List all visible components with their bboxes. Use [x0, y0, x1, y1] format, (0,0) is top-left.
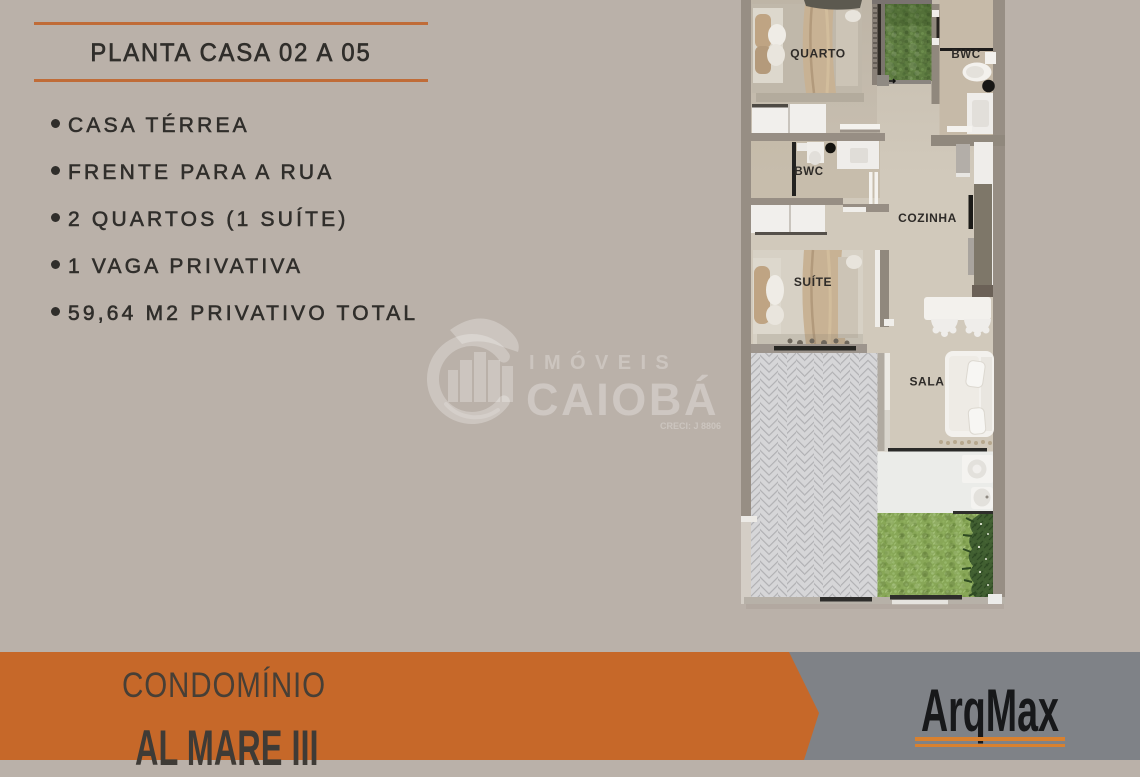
svg-text:SUÍTE: SUÍTE: [794, 274, 832, 289]
svg-text:SALA: SALA: [909, 375, 944, 389]
svg-text:QUARTO: QUARTO: [790, 47, 845, 61]
svg-text:COZINHA: COZINHA: [898, 211, 957, 225]
svg-text:BWC: BWC: [951, 49, 980, 61]
svg-text:BWC: BWC: [794, 166, 823, 178]
